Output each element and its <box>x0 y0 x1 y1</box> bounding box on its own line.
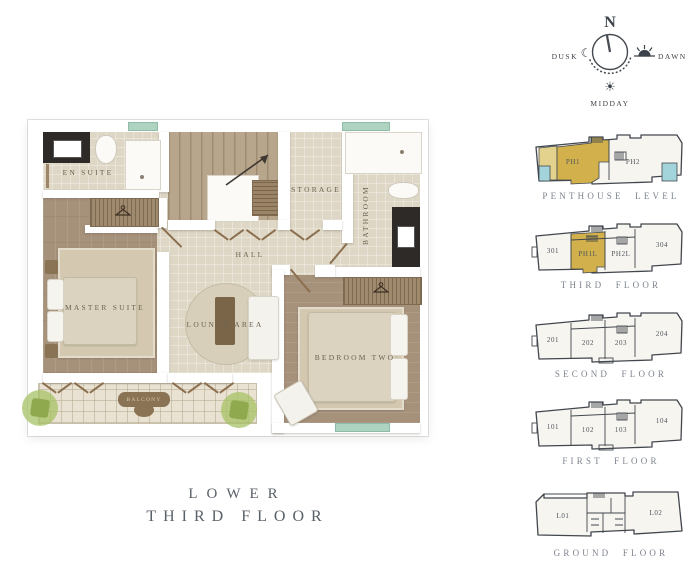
sunrise-icon <box>634 45 655 56</box>
bedside-table <box>45 344 58 358</box>
plant <box>221 392 257 428</box>
room-label-hall: HALL <box>220 250 280 259</box>
pillow <box>390 358 408 400</box>
floorplan-page: BALCONY EN SUITE STORAGE BATHROOM HALL M… <box>0 0 700 583</box>
sun-icon: ☀ <box>604 79 616 94</box>
window-strip <box>342 122 390 131</box>
compass: N ☾ DUSK DAWN ☀ MIDDAY <box>540 8 695 110</box>
door-swing <box>216 229 242 244</box>
compass-arc <box>590 56 631 73</box>
unit-label: L02 <box>649 509 662 517</box>
floor-name: THIRD FLOOR <box>531 280 691 290</box>
unit-label: L01 <box>556 512 569 520</box>
bathroom-toilet <box>388 182 419 199</box>
room-label-bathroom: BATHROOM <box>361 182 370 248</box>
bathroom-sink <box>397 226 415 248</box>
shower-drain <box>140 175 144 179</box>
door-swing <box>248 229 274 244</box>
keyplan-penthouse: PH1 PH2 PENTHOUSE LEVEL <box>531 133 691 201</box>
floor-name: PENTHOUSE LEVEL <box>531 191 691 201</box>
title-line1: LOWER <box>95 486 380 503</box>
hanger-icon <box>115 205 131 217</box>
wall <box>157 252 169 373</box>
pillow <box>390 314 408 356</box>
room-label-storage: STORAGE <box>286 185 346 194</box>
wall <box>168 220 215 230</box>
keyplan-ground-floor: L01 L02 GROUND FLOOR <box>531 490 691 558</box>
wall <box>315 265 335 277</box>
compass-dusk-label: DUSK <box>552 52 578 61</box>
ensuite-shower <box>125 140 161 190</box>
door-swing <box>292 229 318 244</box>
keyplan-balcony <box>539 166 550 181</box>
wall <box>323 220 342 230</box>
ensuite-toilet <box>95 135 117 164</box>
wall <box>278 132 290 220</box>
compass-needle <box>607 36 610 53</box>
unit-label: 304 <box>656 241 668 249</box>
unit-label: 102 <box>582 426 594 434</box>
bedside-table <box>45 260 58 274</box>
bathroom-shower <box>345 132 422 174</box>
main-floorplan: BALCONY EN SUITE STORAGE BATHROOM HALL M… <box>28 120 428 436</box>
unit-label: 103 <box>615 426 627 434</box>
keyplan-second-floor: 201 202 203 204 SECOND FLOOR <box>531 311 691 379</box>
unit-label: 203 <box>615 339 627 347</box>
window-strip <box>335 423 390 432</box>
unit-label: 301 <box>547 247 559 255</box>
compass-north-label: N <box>604 14 616 31</box>
title-line2: THIRD FLOOR <box>95 508 380 526</box>
compass-midday-label: MIDDAY <box>590 99 629 108</box>
wall <box>335 267 420 277</box>
balcony-label: BALCONY <box>127 397 162 403</box>
unit-label: PH1L <box>578 250 597 258</box>
unit-label: 101 <box>547 423 559 431</box>
moon-icon: ☾ <box>581 46 592 60</box>
keyplan-third-floor: 301 PH1L PH2L 304 THIRD FLOOR <box>531 222 691 290</box>
floor-name: FIRST FLOOR <box>531 456 691 466</box>
pillow <box>47 311 64 342</box>
stair-direction-arrow <box>218 145 278 190</box>
keyplan-balcony <box>662 163 677 181</box>
unit-label: 204 <box>656 330 668 338</box>
floor-name: SECOND FLOOR <box>531 369 691 379</box>
floor-name: GROUND FLOOR <box>531 548 691 558</box>
door-swing <box>174 382 200 397</box>
unit-label: PH2 <box>626 158 640 166</box>
page-title: LOWER THIRD FLOOR <box>95 486 380 526</box>
hanger-icon <box>373 282 389 294</box>
room-label-lounge-area: LOUNGE AREA <box>173 320 277 329</box>
balcony-table <box>134 403 154 417</box>
door-swing <box>44 382 70 397</box>
room-label-en-suite: EN SUITE <box>48 168 128 177</box>
ensuite-sink <box>53 140 82 158</box>
window-strip <box>128 122 158 131</box>
unit-label: 202 <box>582 339 594 347</box>
compass-dawn-label: DAWN <box>658 52 687 61</box>
unit-label: PH2L <box>611 250 630 258</box>
keyplan-first-floor: 101 102 103 104 FIRST FLOOR <box>531 398 691 466</box>
wall <box>278 220 290 230</box>
door-swing <box>76 382 102 397</box>
wall <box>43 190 159 198</box>
shower-drain <box>400 150 404 154</box>
unit-label: 104 <box>656 417 668 425</box>
door-swing <box>206 382 232 397</box>
room-label-bedroom-two: BEDROOM TWO <box>303 353 407 362</box>
room-label-master-suite: MASTER SUITE <box>55 303 155 312</box>
unit-label: PH1 <box>566 158 580 166</box>
unit-label: 201 <box>547 336 559 344</box>
